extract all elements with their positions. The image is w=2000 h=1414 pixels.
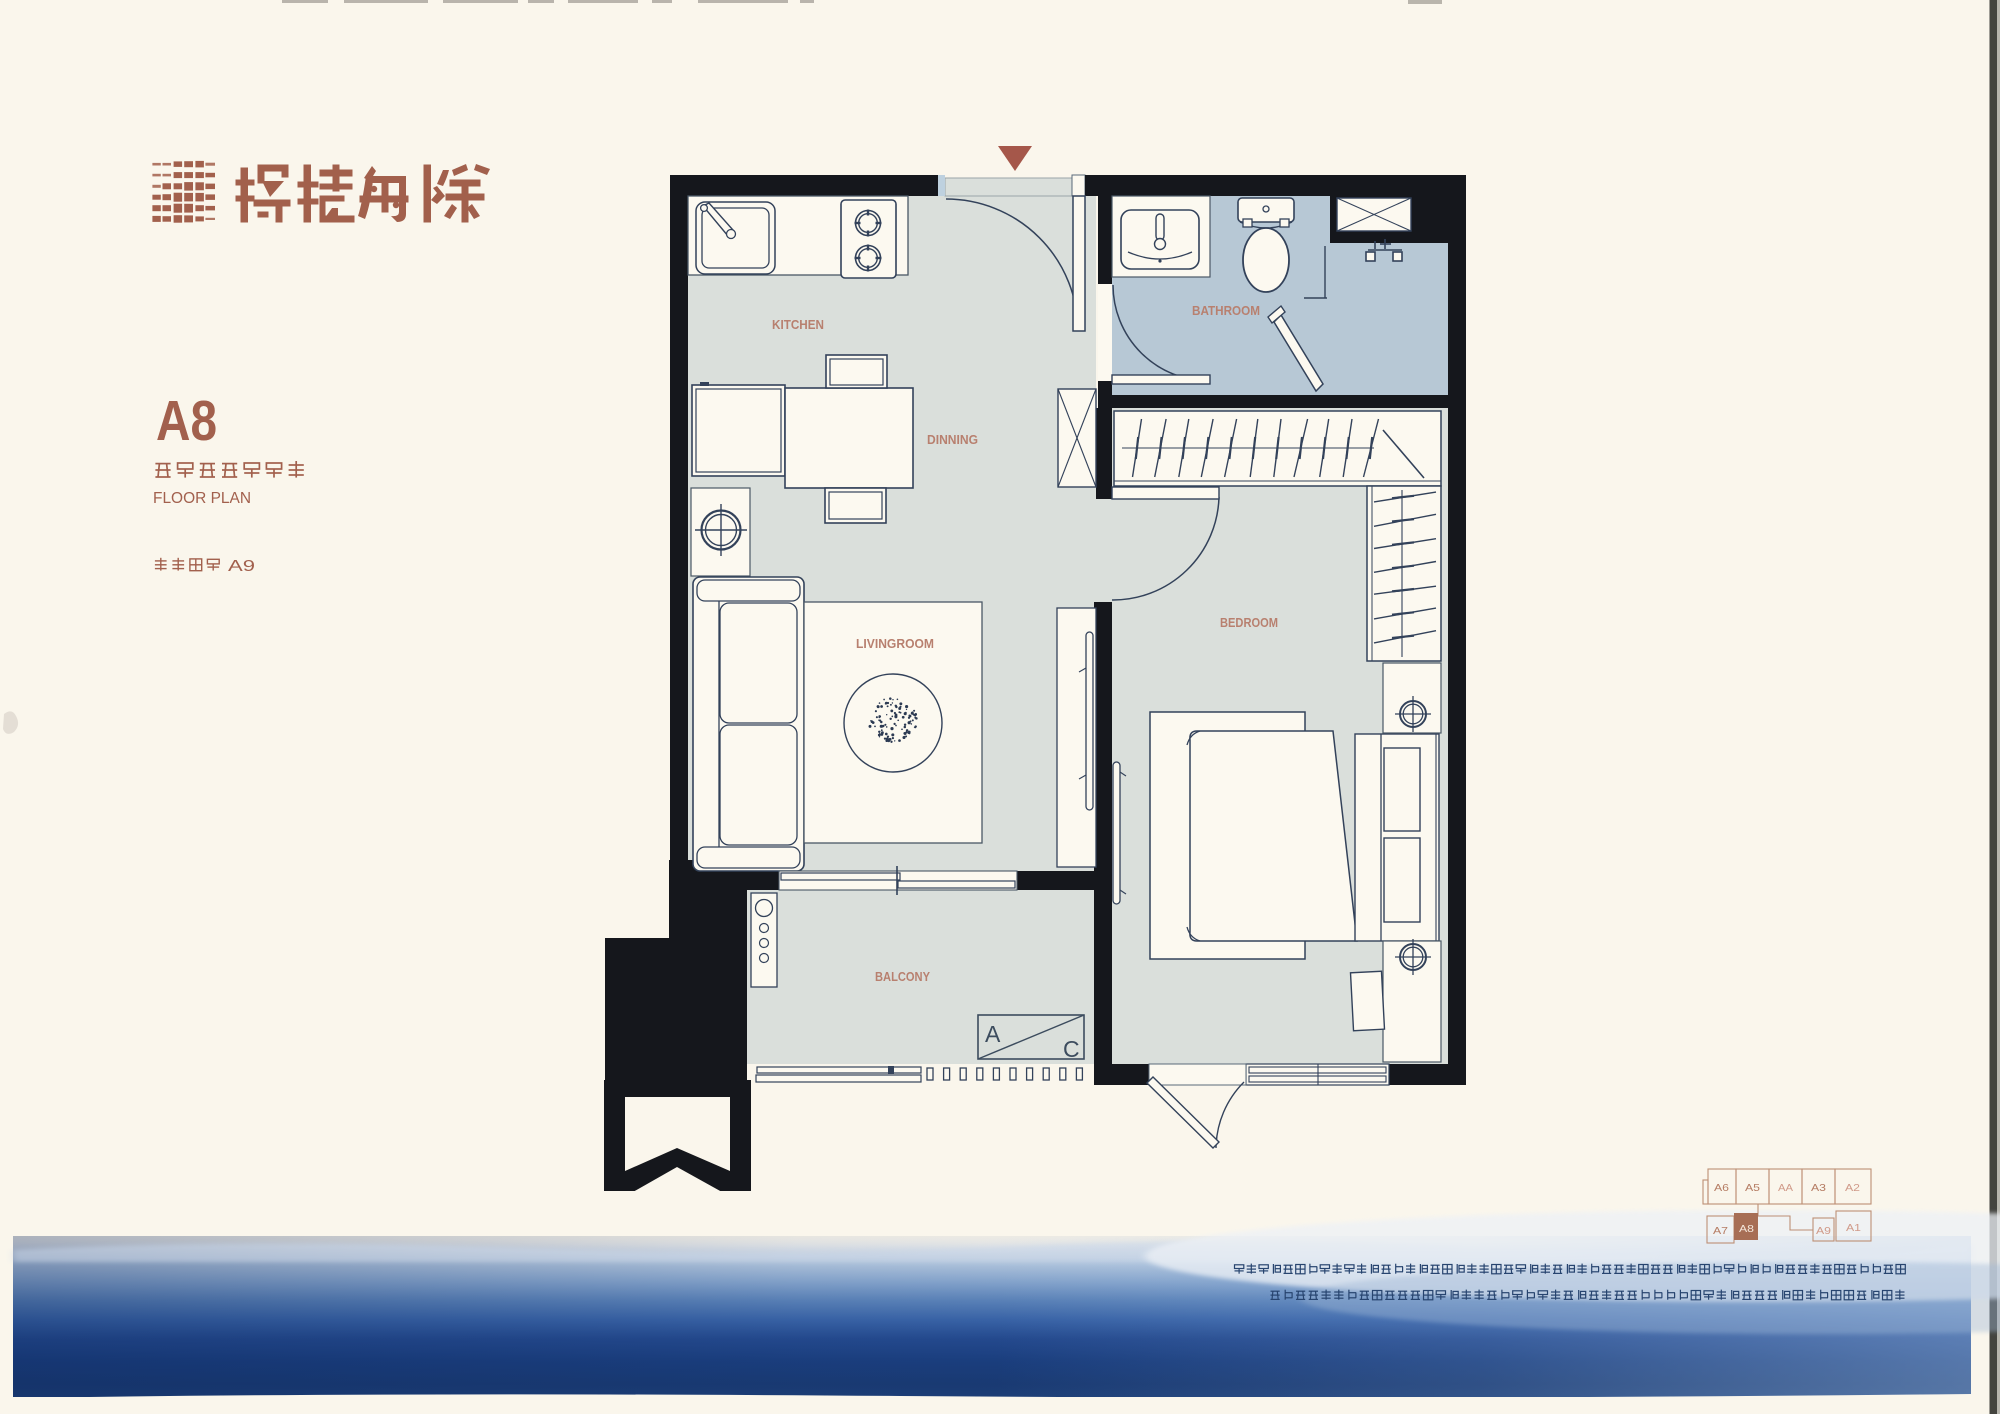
svg-text:BATHROOM: BATHROOM bbox=[1192, 304, 1260, 318]
svg-text:A9: A9 bbox=[228, 558, 255, 575]
svg-text:A: A bbox=[985, 1021, 1001, 1047]
svg-text:DINNING: DINNING bbox=[927, 433, 978, 447]
svg-text:C: C bbox=[1063, 1036, 1080, 1062]
svg-text:LIVINGROOM: LIVINGROOM bbox=[856, 637, 934, 651]
svg-text:A5: A5 bbox=[1745, 1182, 1760, 1194]
svg-text:A1: A1 bbox=[1846, 1222, 1861, 1234]
svg-text:KITCHEN: KITCHEN bbox=[772, 318, 824, 332]
svg-text:A9: A9 bbox=[1816, 1225, 1831, 1237]
svg-text:A2: A2 bbox=[1845, 1182, 1860, 1194]
svg-text:BEDROOM: BEDROOM bbox=[1220, 616, 1278, 630]
svg-text:A7: A7 bbox=[1713, 1225, 1728, 1237]
svg-text:AA: AA bbox=[1778, 1182, 1793, 1194]
svg-text:FLOOR PLAN: FLOOR PLAN bbox=[153, 490, 251, 507]
svg-text:A6: A6 bbox=[1714, 1182, 1729, 1194]
svg-text:A8: A8 bbox=[156, 389, 217, 453]
svg-text:BALCONY: BALCONY bbox=[875, 970, 931, 984]
svg-text:A8: A8 bbox=[1739, 1223, 1754, 1235]
svg-text:A3: A3 bbox=[1811, 1182, 1826, 1194]
